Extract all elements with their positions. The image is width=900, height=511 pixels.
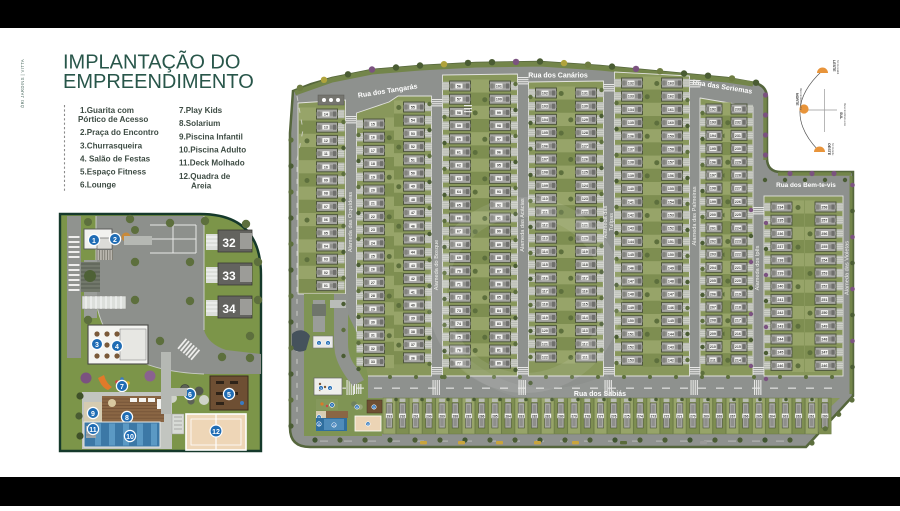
svg-text:264: 264 <box>769 414 775 418</box>
svg-text:209: 209 <box>710 332 716 336</box>
svg-text:7.Play Kids: 7.Play Kids <box>179 106 223 115</box>
svg-text:224: 224 <box>735 226 741 230</box>
svg-text:NORTE: NORTE <box>795 93 799 106</box>
svg-text:147: 147 <box>668 293 674 297</box>
svg-text:SUL: SUL <box>839 112 843 120</box>
svg-text:16: 16 <box>371 136 375 140</box>
svg-text:112: 112 <box>542 224 548 228</box>
svg-text:277: 277 <box>598 414 604 418</box>
svg-text:34: 34 <box>222 302 236 316</box>
svg-text:243: 243 <box>777 324 783 328</box>
svg-text:39: 39 <box>411 317 415 321</box>
svg-text:193: 193 <box>710 121 716 125</box>
svg-text:57: 57 <box>457 98 461 102</box>
svg-text:69: 69 <box>457 256 461 260</box>
svg-text:139: 139 <box>628 174 634 178</box>
svg-text:102: 102 <box>542 92 548 96</box>
svg-text:280: 280 <box>558 414 564 418</box>
svg-text:OESTE: OESTE <box>827 143 831 156</box>
svg-text:66: 66 <box>457 217 461 221</box>
svg-text:11: 11 <box>324 152 328 156</box>
svg-text:163: 163 <box>668 82 674 86</box>
svg-text:205: 205 <box>710 279 716 283</box>
svg-text:138: 138 <box>628 161 634 165</box>
svg-text:100: 100 <box>496 98 502 102</box>
svg-text:90: 90 <box>497 230 501 234</box>
svg-text:94: 94 <box>497 177 501 181</box>
svg-text:12: 12 <box>366 422 370 426</box>
svg-text:229: 229 <box>735 160 741 164</box>
svg-text:288: 288 <box>453 414 459 418</box>
svg-text:149: 149 <box>628 306 634 310</box>
svg-text:14: 14 <box>324 113 328 117</box>
svg-text:287: 287 <box>466 414 472 418</box>
svg-text:23: 23 <box>371 228 375 232</box>
svg-text:151: 151 <box>668 240 674 244</box>
svg-text:12: 12 <box>324 139 328 143</box>
svg-text:99: 99 <box>497 111 501 115</box>
svg-text:124: 124 <box>582 184 588 188</box>
svg-text:1.Guarita com: 1.Guarita com <box>80 106 134 115</box>
svg-text:04: 04 <box>324 245 328 249</box>
svg-text:236: 236 <box>777 232 783 236</box>
svg-text:120: 120 <box>542 329 548 333</box>
svg-text:208: 208 <box>710 319 716 323</box>
svg-text:59: 59 <box>457 124 461 128</box>
svg-text:03: 03 <box>324 258 328 262</box>
svg-text:02: 02 <box>324 271 328 275</box>
svg-text:3.Churrasqueira: 3.Churrasqueira <box>80 142 143 151</box>
svg-text:255: 255 <box>821 245 827 249</box>
svg-text:08: 08 <box>324 192 328 196</box>
svg-text:33: 33 <box>222 269 236 283</box>
svg-text:115: 115 <box>542 263 548 267</box>
svg-text:41: 41 <box>411 290 415 294</box>
svg-text:96: 96 <box>497 151 501 155</box>
svg-text:252: 252 <box>821 285 827 289</box>
svg-text:266: 266 <box>743 414 749 418</box>
svg-text:204: 204 <box>710 266 716 270</box>
svg-text:153: 153 <box>628 359 634 363</box>
svg-text:194: 194 <box>710 134 716 138</box>
svg-text:119: 119 <box>582 250 588 254</box>
svg-text:46: 46 <box>411 224 415 228</box>
svg-text:158: 158 <box>668 148 674 152</box>
svg-text:9.Piscina Infantil: 9.Piscina Infantil <box>179 133 243 142</box>
svg-text:201: 201 <box>710 226 716 230</box>
svg-text:13: 13 <box>324 126 328 130</box>
svg-text:267: 267 <box>730 414 736 418</box>
svg-text:87: 87 <box>497 269 501 273</box>
svg-text:129: 129 <box>582 118 588 122</box>
svg-text:37: 37 <box>411 343 415 347</box>
svg-text:51: 51 <box>411 158 415 162</box>
svg-text:258: 258 <box>821 206 827 210</box>
svg-text:121: 121 <box>542 342 548 346</box>
svg-text:154: 154 <box>668 200 674 204</box>
svg-text:148: 148 <box>668 280 674 284</box>
svg-text:200: 200 <box>710 213 716 217</box>
svg-text:223: 223 <box>735 240 741 244</box>
svg-text:150: 150 <box>668 253 674 257</box>
svg-text:238: 238 <box>777 258 783 262</box>
svg-text:215: 215 <box>735 345 741 349</box>
svg-text:128: 128 <box>582 131 588 135</box>
svg-text:271: 271 <box>677 414 683 418</box>
svg-text:272: 272 <box>664 414 670 418</box>
svg-text:Alameda das Violetas: Alameda das Violetas <box>845 241 851 295</box>
svg-text:260: 260 <box>822 414 828 418</box>
svg-text:25: 25 <box>371 255 375 259</box>
svg-text:144: 144 <box>668 332 674 336</box>
svg-text:11.Deck Molhado: 11.Deck Molhado <box>179 159 245 168</box>
svg-text:05: 05 <box>324 231 328 235</box>
svg-text:244: 244 <box>777 338 783 342</box>
svg-text:250: 250 <box>821 311 827 315</box>
svg-text:118: 118 <box>542 303 548 307</box>
svg-text:253: 253 <box>821 272 827 276</box>
svg-text:98: 98 <box>497 124 501 128</box>
svg-text:45: 45 <box>411 238 415 242</box>
svg-text:73: 73 <box>457 309 461 313</box>
svg-text:36: 36 <box>411 356 415 360</box>
svg-text:Menor incidência solar: Menor incidência solar <box>843 103 846 126</box>
svg-text:157: 157 <box>668 161 674 165</box>
svg-text:235: 235 <box>777 219 783 223</box>
svg-text:64: 64 <box>457 190 461 194</box>
svg-text:70: 70 <box>457 269 461 273</box>
svg-text:105: 105 <box>542 131 548 135</box>
svg-text:146: 146 <box>628 266 634 270</box>
svg-text:116: 116 <box>542 276 548 280</box>
svg-text:Alameda das Orquídeas: Alameda das Orquídeas <box>348 192 354 253</box>
svg-text:195: 195 <box>710 147 716 151</box>
svg-text:Alameda dos Ipês: Alameda dos Ipês <box>755 245 761 290</box>
svg-text:3: 3 <box>95 342 99 349</box>
svg-text:107: 107 <box>542 158 548 162</box>
svg-text:108: 108 <box>542 171 548 175</box>
svg-text:153: 153 <box>668 214 674 218</box>
svg-text:4: 4 <box>115 344 119 351</box>
svg-text:145: 145 <box>668 319 674 323</box>
svg-text:203: 203 <box>710 253 716 257</box>
svg-text:230: 230 <box>735 147 741 151</box>
svg-text:226: 226 <box>735 200 741 204</box>
svg-text:12.Quadra de: 12.Quadra de <box>179 172 231 181</box>
svg-text:20: 20 <box>371 189 375 193</box>
svg-text:11: 11 <box>318 422 321 426</box>
svg-text:48: 48 <box>411 198 415 202</box>
svg-text:55: 55 <box>411 106 415 110</box>
svg-text:234: 234 <box>777 206 783 210</box>
svg-text:222: 222 <box>735 253 741 257</box>
svg-text:44: 44 <box>411 251 415 255</box>
svg-text:101: 101 <box>496 85 502 89</box>
svg-text:285: 285 <box>492 414 498 418</box>
svg-text:119: 119 <box>542 316 548 320</box>
svg-text:40: 40 <box>411 304 415 308</box>
svg-text:239: 239 <box>777 272 783 276</box>
svg-text:152: 152 <box>628 346 634 350</box>
svg-text:206: 206 <box>710 292 716 296</box>
svg-text:227: 227 <box>735 187 741 191</box>
svg-text:IMPLANTAÇÃO DO: IMPLANTAÇÃO DO <box>63 50 240 74</box>
svg-text:27: 27 <box>371 281 375 285</box>
svg-text:10: 10 <box>126 434 134 441</box>
svg-text:202: 202 <box>710 240 716 244</box>
svg-text:117: 117 <box>542 290 548 294</box>
svg-text:141: 141 <box>628 200 634 204</box>
svg-text:07: 07 <box>324 205 328 209</box>
svg-text:289: 289 <box>439 414 445 418</box>
svg-text:268: 268 <box>717 414 723 418</box>
svg-text:18: 18 <box>371 162 375 166</box>
svg-text:146: 146 <box>668 306 674 310</box>
svg-text:251: 251 <box>821 298 827 302</box>
svg-text:275: 275 <box>624 414 630 418</box>
svg-text:261: 261 <box>809 414 815 418</box>
svg-text:249: 249 <box>821 324 827 328</box>
svg-text:116: 116 <box>582 290 588 294</box>
svg-text:74: 74 <box>457 322 461 326</box>
svg-text:219: 219 <box>735 292 741 296</box>
svg-text:50: 50 <box>411 172 415 176</box>
svg-text:06: 06 <box>324 218 328 222</box>
svg-text:130: 130 <box>582 105 588 109</box>
svg-text:114: 114 <box>582 316 588 320</box>
svg-text:284: 284 <box>505 414 511 418</box>
svg-text:1: 1 <box>92 238 96 245</box>
svg-text:246: 246 <box>777 364 783 368</box>
svg-text:89: 89 <box>497 243 501 247</box>
svg-text:273: 273 <box>651 414 657 418</box>
svg-text:134: 134 <box>628 108 634 112</box>
svg-text:145: 145 <box>628 253 634 257</box>
svg-text:254: 254 <box>821 258 827 262</box>
svg-text:242: 242 <box>777 311 783 315</box>
svg-text:32: 32 <box>371 347 375 351</box>
svg-text:126: 126 <box>582 158 588 162</box>
svg-text:113: 113 <box>582 329 588 333</box>
svg-text:160: 160 <box>668 121 674 125</box>
svg-text:84: 84 <box>497 309 501 313</box>
svg-text:210: 210 <box>710 345 716 349</box>
svg-text:248: 248 <box>821 338 827 342</box>
svg-text:283: 283 <box>519 414 525 418</box>
svg-text:136: 136 <box>628 134 634 138</box>
svg-text:207: 207 <box>710 306 716 310</box>
svg-text:72: 72 <box>457 296 461 300</box>
svg-text:52: 52 <box>411 145 415 149</box>
svg-text:131: 131 <box>582 92 588 96</box>
svg-text:4. Salão de Festas: 4. Salão de Festas <box>80 155 151 164</box>
svg-text:143: 143 <box>668 346 674 350</box>
svg-text:216: 216 <box>735 332 741 336</box>
svg-text:228: 228 <box>735 174 741 178</box>
svg-text:53: 53 <box>411 132 415 136</box>
svg-text:26: 26 <box>371 268 375 272</box>
svg-text:63: 63 <box>457 177 461 181</box>
svg-text:257: 257 <box>821 219 827 223</box>
svg-text:192: 192 <box>710 108 716 112</box>
svg-text:104: 104 <box>542 118 548 122</box>
svg-text:150: 150 <box>628 319 634 323</box>
svg-text:245: 245 <box>777 351 783 355</box>
svg-text:38: 38 <box>411 330 415 334</box>
svg-text:147: 147 <box>628 280 634 284</box>
svg-text:10: 10 <box>324 165 328 169</box>
svg-text:156: 156 <box>668 174 674 178</box>
svg-text:9: 9 <box>91 411 95 418</box>
svg-text:12: 12 <box>212 429 220 436</box>
svg-text:137: 137 <box>628 148 634 152</box>
svg-text:Areia: Areia <box>191 182 212 191</box>
svg-text:LESTE: LESTE <box>832 60 836 72</box>
svg-text:279: 279 <box>571 414 577 418</box>
svg-text:ÔRI JARDINS | VITTA: ÔRI JARDINS | VITTA <box>20 59 25 108</box>
svg-text:162: 162 <box>668 95 674 99</box>
svg-text:117: 117 <box>582 276 588 280</box>
svg-text:225: 225 <box>735 213 741 217</box>
svg-text:71: 71 <box>457 283 461 287</box>
svg-text:231: 231 <box>735 134 741 138</box>
svg-text:86: 86 <box>497 283 501 287</box>
svg-text:81: 81 <box>497 349 501 353</box>
svg-text:5: 5 <box>227 392 231 399</box>
svg-text:262: 262 <box>796 414 802 418</box>
svg-text:8: 8 <box>125 415 129 422</box>
svg-text:65: 65 <box>457 203 461 207</box>
svg-text:148: 148 <box>628 293 634 297</box>
svg-text:19: 19 <box>371 175 375 179</box>
svg-text:152: 152 <box>668 227 674 231</box>
svg-text:149: 149 <box>668 266 674 270</box>
svg-text:11: 11 <box>89 427 97 434</box>
svg-text:263: 263 <box>783 414 789 418</box>
svg-text:123: 123 <box>582 197 588 201</box>
svg-text:58: 58 <box>457 111 461 115</box>
svg-text:159: 159 <box>668 134 674 138</box>
svg-text:5.Espaço Fitness: 5.Espaço Fitness <box>80 168 147 177</box>
svg-text:15: 15 <box>371 123 375 127</box>
svg-text:256: 256 <box>821 232 827 236</box>
svg-text:83: 83 <box>497 322 501 326</box>
svg-text:24: 24 <box>371 241 375 245</box>
svg-text:282: 282 <box>532 414 538 418</box>
svg-text:Maior incidência solar: Maior incidência solar <box>799 88 802 110</box>
svg-text:220: 220 <box>735 279 741 283</box>
svg-text:103: 103 <box>542 105 548 109</box>
svg-text:21: 21 <box>371 202 375 206</box>
svg-text:265: 265 <box>756 414 762 418</box>
svg-text:2.Praça do Encontro: 2.Praça do Encontro <box>80 128 159 137</box>
svg-text:Tulípas: Tulípas <box>609 213 615 231</box>
svg-text:43: 43 <box>411 264 415 268</box>
svg-text:218: 218 <box>735 306 741 310</box>
svg-text:132: 132 <box>628 82 634 86</box>
svg-text:211: 211 <box>710 358 716 362</box>
svg-text:291: 291 <box>413 414 419 418</box>
svg-text:269: 269 <box>703 414 709 418</box>
svg-text:28: 28 <box>371 294 375 298</box>
svg-text:135: 135 <box>628 121 634 125</box>
svg-text:113: 113 <box>542 237 548 241</box>
svg-text:214: 214 <box>735 358 741 362</box>
svg-text:232: 232 <box>735 121 741 125</box>
svg-text:32: 32 <box>222 236 236 250</box>
svg-text:01: 01 <box>324 284 328 288</box>
svg-text:106: 106 <box>542 144 548 148</box>
svg-text:88: 88 <box>497 256 501 260</box>
svg-text:10.Piscina Adulto: 10.Piscina Adulto <box>179 146 246 155</box>
svg-text:122: 122 <box>582 210 588 214</box>
svg-text:278: 278 <box>585 414 591 418</box>
svg-text:Sol da manhã: Sol da manhã <box>836 60 839 75</box>
svg-text:42: 42 <box>411 277 415 281</box>
svg-text:151: 151 <box>628 332 634 336</box>
svg-text:140: 140 <box>628 187 634 191</box>
svg-text:142: 142 <box>628 214 634 218</box>
svg-text:133: 133 <box>628 95 634 99</box>
svg-text:56: 56 <box>457 85 461 89</box>
svg-text:17: 17 <box>371 149 375 153</box>
svg-text:144: 144 <box>628 240 634 244</box>
svg-text:8.Solarium: 8.Solarium <box>179 119 220 128</box>
svg-text:82: 82 <box>497 335 501 339</box>
svg-text:61: 61 <box>457 151 461 155</box>
svg-text:161: 161 <box>668 108 674 112</box>
svg-text:237: 237 <box>777 245 783 249</box>
svg-text:6: 6 <box>188 392 192 399</box>
svg-text:281: 281 <box>545 414 551 418</box>
svg-text:142: 142 <box>668 359 674 363</box>
svg-text:Rua dos Canários: Rua dos Canários <box>528 73 588 80</box>
svg-text:217: 217 <box>735 319 741 323</box>
svg-text:270: 270 <box>690 414 696 418</box>
svg-text:10: 10 <box>332 423 336 427</box>
svg-text:114: 114 <box>542 250 548 254</box>
svg-text:221: 221 <box>735 266 741 270</box>
svg-text:118: 118 <box>582 263 588 267</box>
svg-text:125: 125 <box>582 171 588 175</box>
svg-text:197: 197 <box>710 174 716 178</box>
svg-text:2: 2 <box>113 237 117 244</box>
svg-text:109: 109 <box>542 184 548 188</box>
svg-text:199: 199 <box>710 200 716 204</box>
svg-text:85: 85 <box>497 296 501 300</box>
svg-text:241: 241 <box>777 298 783 302</box>
svg-text:Sol da tarde: Sol da tarde <box>831 143 834 156</box>
svg-text:22: 22 <box>371 215 375 219</box>
svg-text:293: 293 <box>387 414 393 418</box>
svg-text:Alameda das Palmeiras: Alameda das Palmeiras <box>692 186 698 245</box>
svg-text:122: 122 <box>542 356 548 360</box>
svg-text:286: 286 <box>479 414 485 418</box>
svg-text:93: 93 <box>497 190 501 194</box>
svg-text:Pórtico de Acesso: Pórtico de Acesso <box>78 115 148 124</box>
svg-text:EMPREENDIMENTO: EMPREENDIMENTO <box>63 71 254 93</box>
svg-text:198: 198 <box>710 187 716 191</box>
svg-text:Rua dos Bem-te-vis: Rua dos Bem-te-vis <box>776 182 836 189</box>
svg-text:49: 49 <box>411 185 415 189</box>
svg-text:54: 54 <box>411 119 415 123</box>
svg-text:47: 47 <box>411 211 415 215</box>
svg-text:247: 247 <box>821 351 827 355</box>
svg-text:290: 290 <box>426 414 432 418</box>
svg-text:80: 80 <box>497 362 501 366</box>
svg-text:196: 196 <box>710 160 716 164</box>
svg-text:30: 30 <box>371 321 375 325</box>
